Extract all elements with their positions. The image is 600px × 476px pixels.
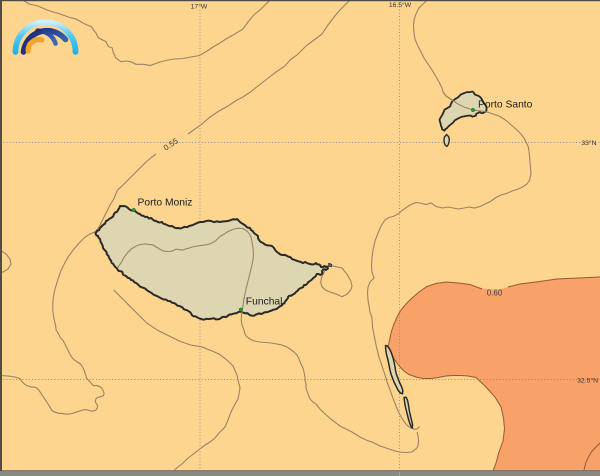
- svg-text:33°N: 33°N: [581, 139, 596, 147]
- svg-text:0.60: 0.60: [487, 288, 503, 297]
- svg-text:32.5°N: 32.5°N: [577, 376, 598, 384]
- svg-text:Porto Moniz: Porto Moniz: [138, 197, 193, 208]
- svg-text:Funchal: Funchal: [246, 296, 283, 307]
- svg-text:16.5°W: 16.5°W: [389, 1, 412, 9]
- svg-text:Porto Santo: Porto Santo: [478, 100, 533, 111]
- svg-text:17°W: 17°W: [191, 3, 208, 11]
